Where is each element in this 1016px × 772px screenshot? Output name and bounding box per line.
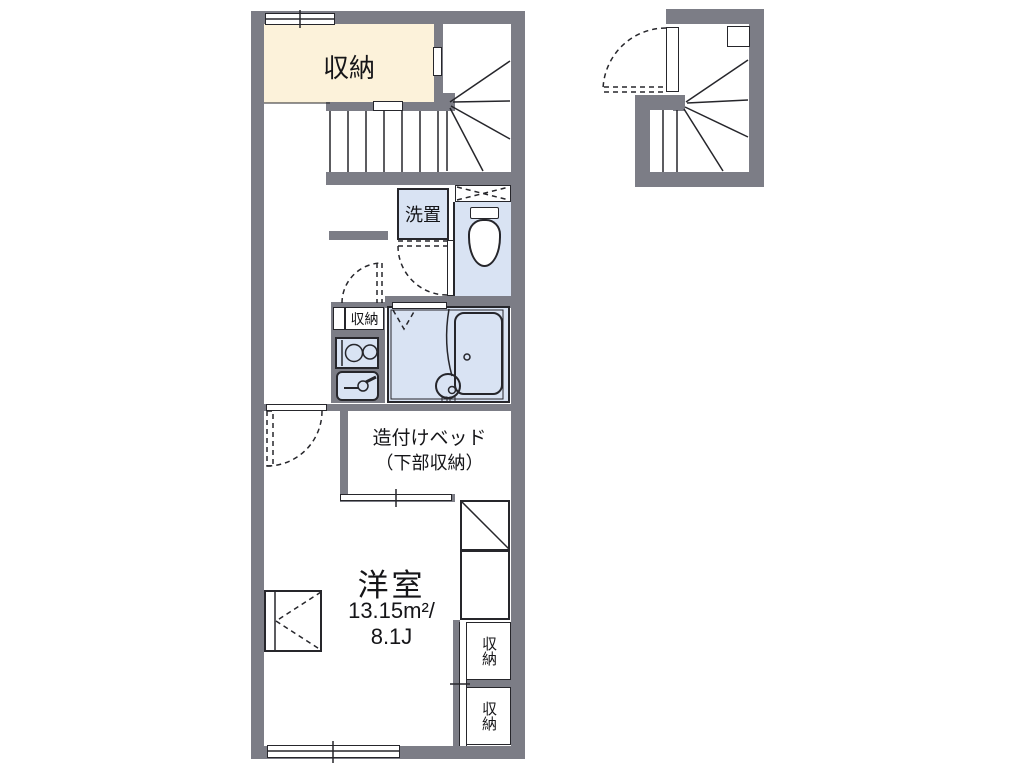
stairwell-storage-square [727, 26, 750, 47]
stairwell-wall-right [749, 9, 764, 187]
toilet-window [455, 185, 511, 202]
stairwell-wall-stub [650, 95, 673, 110]
wall-right [511, 11, 525, 759]
stair-handrail [373, 101, 403, 111]
window-bottom [267, 745, 400, 758]
stairwell-newel-post [673, 95, 685, 111]
kitchen-counter-end [333, 307, 345, 330]
bed-label-line1: 造付けベッド [348, 423, 511, 450]
entry-door [267, 411, 322, 466]
floor-plan: 収納 洗置 収納 造付けベッド （下部収納） 洋室 13.15m²/ 8.1J … [0, 0, 1016, 772]
stove [335, 337, 379, 369]
wall-bed-left [340, 404, 348, 502]
kitchen-storage-label: 収納 [345, 307, 384, 330]
storage-right-upper-label: 収納 [466, 622, 511, 680]
window-top [265, 13, 335, 25]
storage-right-lower-label: 収納 [466, 687, 511, 745]
stairwell-door-jamb [666, 27, 679, 92]
stairwell-wall-left [635, 95, 650, 187]
bed-label-line2: （下部収納） [348, 449, 511, 475]
wall-left [251, 11, 264, 759]
wall-storage-separator [466, 680, 511, 687]
entry-door-opening [266, 404, 327, 411]
washroom-door-jamb [447, 240, 454, 296]
washroom-door [398, 241, 447, 295]
kitchen-sink [336, 371, 379, 401]
bathroom-box [387, 306, 510, 403]
storage-stair-door-jamb [433, 47, 442, 76]
refrigerator-space [460, 500, 510, 551]
wall-stair-bottom [326, 172, 511, 185]
laundry-label: 洗置 [397, 188, 449, 240]
stair-newel-post [441, 93, 455, 111]
toilet-tank [470, 207, 499, 219]
wall-hall-stub [329, 231, 388, 240]
room-area-jo-label: 8.1J [299, 624, 484, 650]
stairwell-wall-bottom [638, 172, 764, 187]
storage-top-label: 収納 [264, 48, 434, 85]
bath-door-opening [392, 302, 447, 309]
bed-sliding-door [340, 494, 452, 501]
kitchen-door [342, 263, 382, 303]
room-area-m2-label: 13.15m²/ [299, 598, 484, 624]
